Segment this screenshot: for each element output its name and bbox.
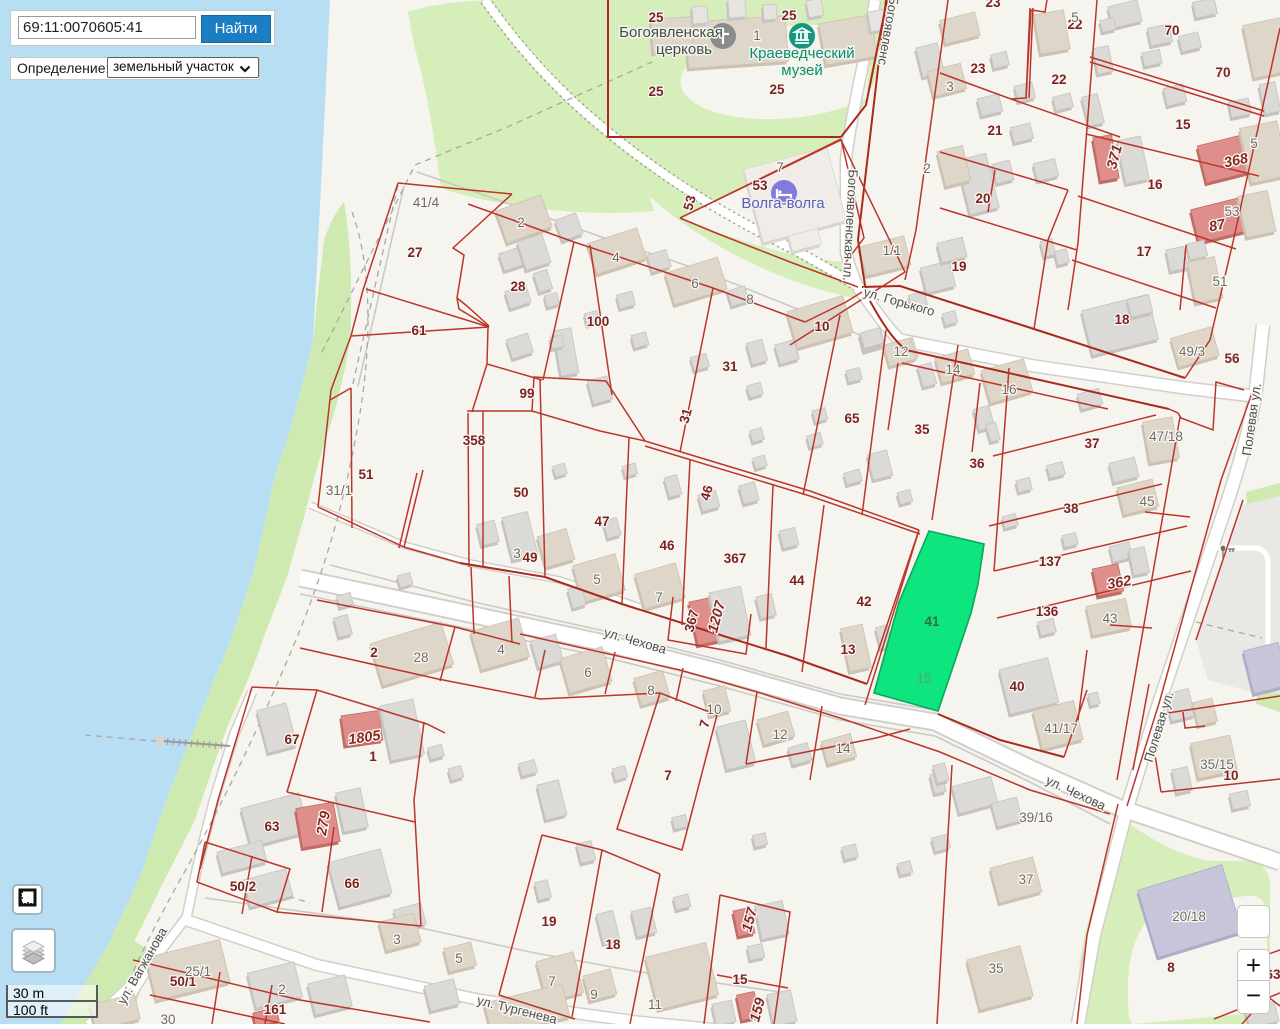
svg-text:16: 16 [1001, 382, 1016, 397]
svg-text:67: 67 [284, 732, 299, 747]
svg-text:3: 3 [393, 932, 401, 947]
svg-text:56: 56 [1224, 351, 1240, 366]
svg-text:49: 49 [522, 550, 537, 565]
svg-text:2: 2 [370, 645, 378, 660]
svg-text:30: 30 [160, 1012, 175, 1024]
svg-text:47: 47 [594, 514, 609, 529]
svg-text:25: 25 [648, 10, 664, 25]
svg-text:18: 18 [605, 937, 621, 952]
svg-text:63: 63 [264, 819, 280, 834]
svg-text:20/18: 20/18 [1172, 909, 1206, 924]
svg-text:19: 19 [951, 259, 966, 274]
svg-text:65: 65 [844, 411, 860, 426]
svg-text:51: 51 [358, 467, 374, 482]
svg-text:25: 25 [769, 82, 785, 97]
svg-text:25/1: 25/1 [185, 964, 211, 979]
svg-text:11: 11 [648, 997, 662, 1012]
svg-text:35: 35 [914, 422, 930, 437]
svg-text:5: 5 [1250, 136, 1258, 151]
svg-text:6: 6 [584, 665, 592, 680]
svg-text:41/4: 41/4 [413, 195, 440, 210]
svg-text:1/1: 1/1 [883, 243, 902, 258]
svg-text:136: 136 [1036, 604, 1059, 619]
svg-text:44: 44 [789, 573, 805, 588]
svg-text:10: 10 [706, 702, 721, 717]
svg-text:66: 66 [344, 876, 360, 891]
svg-text:19: 19 [541, 914, 556, 929]
svg-text:6: 6 [691, 276, 699, 291]
svg-text:50/2: 50/2 [230, 879, 256, 894]
svg-text:церковь: церковь [656, 41, 712, 58]
svg-text:7: 7 [655, 590, 663, 605]
svg-text:41: 41 [924, 614, 940, 629]
svg-text:2: 2 [517, 215, 525, 230]
svg-text:Краеведческий: Краеведческий [749, 45, 854, 62]
svg-text:14: 14 [835, 741, 851, 756]
svg-text:5: 5 [593, 572, 601, 587]
svg-text:37: 37 [1018, 872, 1033, 887]
svg-text:45: 45 [1139, 494, 1154, 509]
svg-text:39/16: 39/16 [1019, 810, 1053, 825]
svg-text:Волга-волга: Волга-волга [741, 195, 825, 212]
svg-text:46: 46 [659, 538, 675, 553]
svg-text:53: 53 [752, 178, 768, 193]
svg-text:42: 42 [856, 594, 871, 609]
svg-text:16: 16 [1147, 177, 1163, 192]
svg-text:367: 367 [724, 551, 747, 566]
svg-text:5: 5 [455, 951, 463, 966]
svg-text:35: 35 [988, 961, 1003, 976]
svg-text:7: 7 [548, 974, 556, 989]
svg-text:47/18: 47/18 [1149, 429, 1183, 444]
svg-text:2: 2 [923, 161, 931, 176]
svg-text:12: 12 [772, 727, 787, 742]
svg-text:31/1: 31/1 [326, 483, 352, 498]
svg-text:161: 161 [264, 1002, 287, 1017]
svg-text:43: 43 [1102, 611, 1117, 626]
svg-text:4: 4 [612, 250, 620, 265]
svg-text:15: 15 [916, 671, 931, 686]
svg-text:100: 100 [587, 314, 610, 329]
svg-text:9: 9 [590, 987, 598, 1002]
svg-text:14: 14 [945, 362, 961, 377]
svg-text:7: 7 [776, 160, 784, 175]
svg-text:20: 20 [975, 191, 990, 206]
svg-text:25: 25 [781, 8, 797, 23]
svg-text:36: 36 [969, 456, 985, 471]
svg-text:10: 10 [814, 319, 829, 334]
svg-text:21: 21 [987, 123, 1003, 138]
svg-text:28: 28 [413, 650, 428, 665]
svg-text:25: 25 [648, 84, 664, 99]
svg-text:4: 4 [497, 642, 505, 657]
svg-text:8: 8 [746, 292, 754, 307]
svg-text:38: 38 [1063, 501, 1079, 516]
svg-text:1: 1 [753, 28, 761, 43]
svg-text:13: 13 [840, 642, 856, 657]
svg-text:15: 15 [732, 972, 748, 987]
svg-text:12: 12 [893, 344, 908, 359]
svg-text:49/3: 49/3 [1179, 344, 1205, 359]
svg-text:137: 137 [1039, 554, 1062, 569]
svg-text:27: 27 [407, 245, 422, 260]
svg-text:музей: музей [781, 62, 822, 79]
svg-text:28: 28 [510, 279, 526, 294]
svg-text:41/17: 41/17 [1044, 721, 1078, 736]
svg-text:99: 99 [519, 386, 534, 401]
svg-text:Богоявленская: Богоявленская [619, 24, 723, 41]
svg-text:70: 70 [1215, 65, 1230, 80]
svg-text:53: 53 [1224, 204, 1239, 219]
svg-text:2: 2 [278, 982, 286, 997]
svg-text:51: 51 [1212, 274, 1227, 289]
svg-text:23: 23 [985, 0, 1001, 10]
svg-text:31: 31 [722, 359, 738, 374]
svg-text:15: 15 [1175, 117, 1191, 132]
svg-text:18: 18 [1114, 312, 1130, 327]
svg-text:37: 37 [1084, 436, 1099, 451]
svg-text:1: 1 [369, 749, 377, 764]
svg-text:358: 358 [463, 433, 486, 448]
svg-text:3: 3 [513, 546, 521, 561]
svg-text:3: 3 [946, 79, 954, 94]
svg-text:61: 61 [411, 323, 427, 338]
svg-text:17: 17 [1136, 244, 1151, 259]
svg-text:5: 5 [1071, 10, 1079, 25]
svg-text:7: 7 [664, 768, 672, 783]
svg-text:23: 23 [970, 61, 986, 76]
svg-text:50: 50 [513, 485, 528, 500]
svg-text:8: 8 [647, 683, 655, 698]
svg-text:40: 40 [1009, 679, 1024, 694]
svg-text:8: 8 [1167, 960, 1175, 975]
svg-text:22: 22 [1051, 72, 1066, 87]
svg-text:70: 70 [1164, 23, 1179, 38]
svg-text:35/15: 35/15 [1200, 757, 1234, 772]
